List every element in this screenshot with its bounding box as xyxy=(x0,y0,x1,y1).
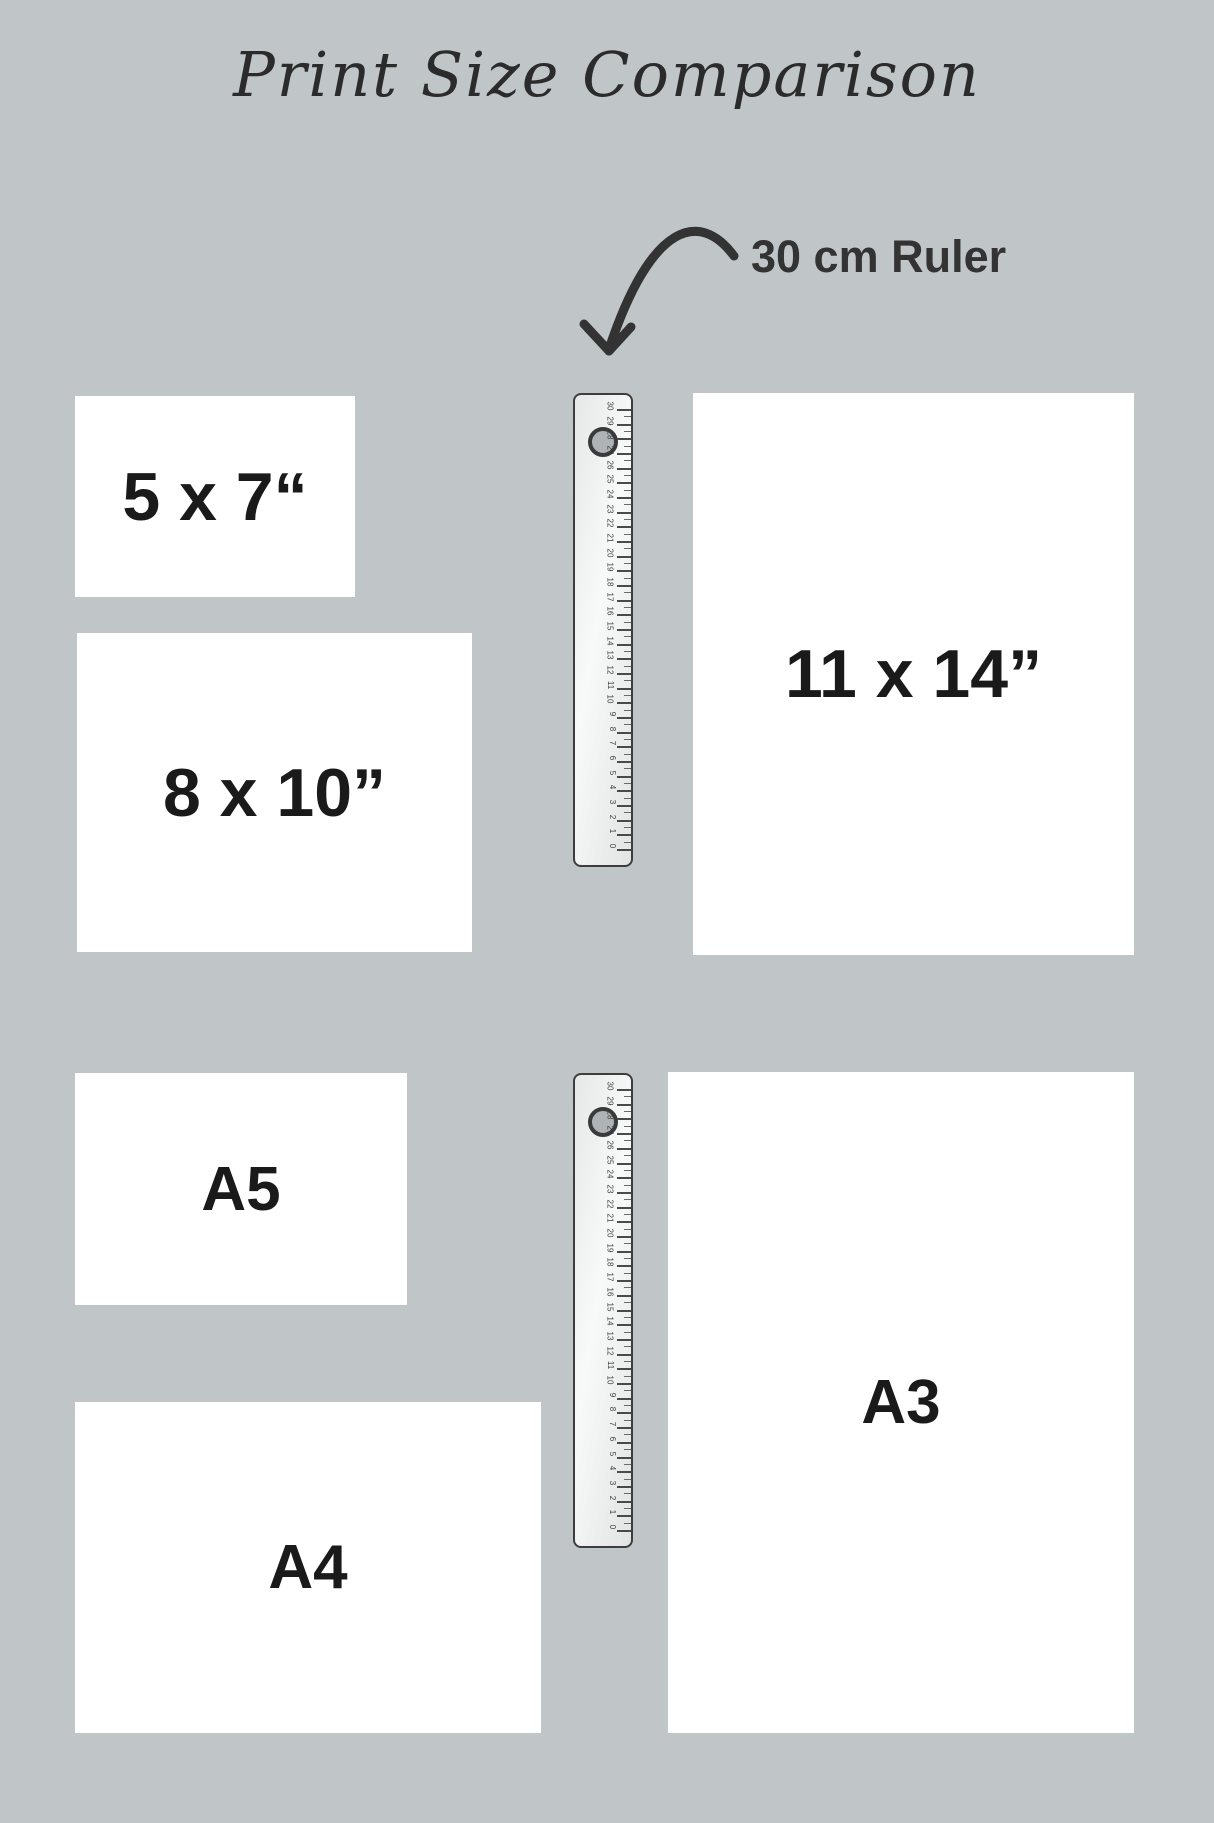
ruler-annotation-label: 30 cm Ruler xyxy=(751,231,1006,283)
ruler-number: 12 xyxy=(606,1346,614,1355)
paper-5x7: 5 x 7“ xyxy=(75,396,355,597)
ruler-tick xyxy=(617,761,631,763)
ruler-tick xyxy=(617,1515,631,1517)
ruler-tick-minor xyxy=(624,1258,631,1259)
ruler-number: 27 xyxy=(606,446,614,455)
ruler-tick xyxy=(617,834,631,836)
ruler-tick xyxy=(617,1118,631,1120)
ruler-tick-minor xyxy=(624,636,631,637)
ruler-number: 6 xyxy=(608,756,616,760)
ruler-tick-minor xyxy=(624,1287,631,1288)
paper-5x7-label: 5 x 7“ xyxy=(122,458,307,536)
ruler-tick-minor xyxy=(624,460,631,461)
ruler-tick xyxy=(617,438,631,440)
ruler-tick-minor xyxy=(624,1170,631,1171)
ruler-number: 4 xyxy=(608,785,616,789)
ruler-number: 28 xyxy=(606,431,614,440)
ruler-tick xyxy=(617,746,631,748)
ruler-bottom: 0123456789101112131415161718192021222324… xyxy=(573,1073,633,1548)
ruler-tick-minor xyxy=(624,798,631,799)
ruler-tick-minor xyxy=(624,1155,631,1156)
ruler-number: 1 xyxy=(608,1510,616,1514)
ruler-number: 30 xyxy=(606,402,614,411)
ruler-tick xyxy=(617,1133,631,1135)
ruler-tick xyxy=(617,453,631,455)
ruler-number: 7 xyxy=(608,741,616,745)
ruler-number: 10 xyxy=(606,695,614,704)
paper-8x10: 8 x 10” xyxy=(77,633,472,952)
ruler-tick xyxy=(617,1236,631,1238)
ruler-tick xyxy=(617,1221,631,1223)
ruler-tick-minor xyxy=(624,1376,631,1377)
ruler-tick xyxy=(617,468,631,470)
ruler-tick-minor xyxy=(624,1332,631,1333)
paper-a3: A3 xyxy=(668,1072,1134,1733)
ruler-number: 1 xyxy=(608,829,616,833)
paper-11x14: 11 x 14” xyxy=(693,393,1134,955)
ruler-tick-minor xyxy=(624,1140,631,1141)
ruler-tick-minor xyxy=(624,1479,631,1480)
ruler-tick xyxy=(617,644,631,646)
ruler-tick xyxy=(617,1368,631,1370)
ruler-tick-minor xyxy=(624,1273,631,1274)
ruler-tick-minor xyxy=(624,592,631,593)
ruler-tick xyxy=(617,820,631,822)
ruler-number: 5 xyxy=(608,770,616,774)
ruler-number: 8 xyxy=(608,1407,616,1411)
ruler-number: 14 xyxy=(606,636,614,645)
ruler-number: 4 xyxy=(608,1466,616,1470)
ruler-tick xyxy=(617,1163,631,1165)
ruler-tick-minor xyxy=(624,1214,631,1215)
ruler-tick-minor xyxy=(624,490,631,491)
ruler-tick-minor xyxy=(624,783,631,784)
ruler-tick xyxy=(617,790,631,792)
ruler-top: 0123456789101112131415161718192021222324… xyxy=(573,393,633,867)
ruler-tick-minor xyxy=(624,1111,631,1112)
paper-a5: A5 xyxy=(75,1073,407,1305)
ruler-tick xyxy=(617,1324,631,1326)
ruler-number: 16 xyxy=(606,1287,614,1296)
ruler-number: 17 xyxy=(606,592,614,601)
ruler-number: 0 xyxy=(608,1525,616,1529)
ruler-tick-minor xyxy=(624,1449,631,1450)
ruler-tick xyxy=(617,1265,631,1267)
ruler-tick-minor xyxy=(624,578,631,579)
ruler-tick-minor xyxy=(624,622,631,623)
ruler-number: 7 xyxy=(608,1422,616,1426)
ruler-tick xyxy=(617,570,631,572)
ruler-number: 15 xyxy=(606,622,614,631)
print-size-comparison-poster: Print Size Comparison 30 cm Ruler 5 x 7“… xyxy=(0,0,1214,1823)
ruler-tick xyxy=(617,776,631,778)
ruler-number: 11 xyxy=(606,681,614,689)
ruler-number: 29 xyxy=(606,1096,614,1105)
paper-a5-label: A5 xyxy=(201,1154,280,1225)
ruler-tick-minor xyxy=(624,1229,631,1230)
ruler-tick-minor xyxy=(624,812,631,813)
ruler-tick-minor xyxy=(624,519,631,520)
ruler-number: 21 xyxy=(606,534,614,543)
ruler-number: 21 xyxy=(606,1214,614,1223)
ruler-tick xyxy=(617,1295,631,1297)
ruler-tick-minor xyxy=(624,1434,631,1435)
ruler-number: 10 xyxy=(606,1376,614,1385)
page-title: Print Size Comparison xyxy=(0,38,1214,111)
ruler-number: 19 xyxy=(606,1243,614,1252)
ruler-number: 17 xyxy=(606,1273,614,1282)
paper-8x10-label: 8 x 10” xyxy=(163,754,386,832)
ruler-tick xyxy=(617,585,631,587)
ruler-tick-minor xyxy=(624,754,631,755)
ruler-tick-minor xyxy=(624,1420,631,1421)
ruler-tick xyxy=(617,805,631,807)
ruler-tick xyxy=(617,629,631,631)
ruler-tick-minor xyxy=(624,768,631,769)
ruler-number: 5 xyxy=(608,1451,616,1455)
ruler-tick xyxy=(617,1192,631,1194)
ruler-number: 2 xyxy=(608,1495,616,1499)
ruler-tick xyxy=(617,600,631,602)
ruler-number: 3 xyxy=(608,1481,616,1485)
ruler-number: 16 xyxy=(606,607,614,616)
ruler-tick-minor xyxy=(624,446,631,447)
ruler-number: 28 xyxy=(606,1111,614,1120)
ruler-tick xyxy=(617,1442,631,1444)
ruler-number: 19 xyxy=(606,563,614,572)
ruler-number: 30 xyxy=(606,1082,614,1091)
ruler-number: 22 xyxy=(606,1199,614,1208)
ruler-tick-minor xyxy=(624,1508,631,1509)
ruler-number: 24 xyxy=(606,490,614,499)
ruler-tick-minor xyxy=(624,1096,631,1097)
ruler-tick xyxy=(617,1471,631,1473)
ruler-tick-minor xyxy=(624,680,631,681)
ruler-tick-minor xyxy=(624,1243,631,1244)
ruler-tick-minor xyxy=(624,1317,631,1318)
paper-a4: A4 xyxy=(75,1402,541,1733)
ruler-number: 24 xyxy=(606,1170,614,1179)
ruler-tick-minor xyxy=(624,842,631,843)
ruler-tick xyxy=(617,688,631,690)
ruler-tick-minor xyxy=(624,710,631,711)
ruler-tick-minor xyxy=(624,1302,631,1303)
ruler-tick xyxy=(617,1530,631,1532)
ruler-tick-minor xyxy=(624,504,631,505)
ruler-number: 20 xyxy=(606,1229,614,1238)
ruler-number: 20 xyxy=(606,548,614,557)
ruler-tick xyxy=(617,1457,631,1459)
ruler-tick xyxy=(617,702,631,704)
ruler-tick xyxy=(617,526,631,528)
ruler-tick-minor xyxy=(624,534,631,535)
ruler-number: 0 xyxy=(608,844,616,848)
ruler-number: 9 xyxy=(608,712,616,716)
ruler-number: 23 xyxy=(606,1184,614,1193)
ruler-number: 6 xyxy=(608,1437,616,1441)
ruler-tick-minor xyxy=(624,475,631,476)
ruler-tick-minor xyxy=(624,563,631,564)
ruler-tick-minor xyxy=(624,1185,631,1186)
ruler-tick xyxy=(617,1339,631,1341)
ruler-number: 15 xyxy=(606,1302,614,1311)
ruler-tick-minor xyxy=(624,827,631,828)
ruler-number: 26 xyxy=(606,460,614,469)
ruler-tick xyxy=(617,1177,631,1179)
ruler-number: 27 xyxy=(606,1126,614,1135)
ruler-number: 2 xyxy=(608,814,616,818)
ruler-tick xyxy=(617,1251,631,1253)
ruler-tick xyxy=(617,614,631,616)
ruler-tick-minor xyxy=(624,1405,631,1406)
ruler-number: 11 xyxy=(606,1361,614,1369)
ruler-tick xyxy=(617,1486,631,1488)
paper-a4-label: A4 xyxy=(268,1532,347,1603)
ruler-tick xyxy=(617,1412,631,1414)
ruler-number: 8 xyxy=(608,726,616,730)
ruler-number: 26 xyxy=(606,1140,614,1149)
ruler-tick-minor xyxy=(624,739,631,740)
ruler-tick xyxy=(617,512,631,514)
ruler-tick-minor xyxy=(624,651,631,652)
ruler-number: 25 xyxy=(606,1155,614,1164)
ruler-tick xyxy=(617,717,631,719)
ruler-tick xyxy=(617,1427,631,1429)
ruler-tick xyxy=(617,1104,631,1106)
ruler-tick xyxy=(617,849,631,851)
ruler-number: 9 xyxy=(608,1392,616,1396)
ruler-tick xyxy=(617,1280,631,1282)
ruler-tick xyxy=(617,1354,631,1356)
ruler-tick-minor xyxy=(624,1464,631,1465)
ruler-tick-minor xyxy=(624,416,631,417)
ruler-tick xyxy=(617,1398,631,1400)
ruler-tick xyxy=(617,482,631,484)
ruler-tick xyxy=(617,541,631,543)
ruler-number: 25 xyxy=(606,475,614,484)
ruler-tick-minor xyxy=(624,1199,631,1200)
ruler-tick-minor xyxy=(624,1390,631,1391)
ruler-tick xyxy=(617,1383,631,1385)
ruler-tick-minor xyxy=(624,695,631,696)
ruler-tick xyxy=(617,497,631,499)
ruler-tick-minor xyxy=(624,1493,631,1494)
ruler-number: 18 xyxy=(606,1258,614,1267)
ruler-tick xyxy=(617,424,631,426)
ruler-tick-minor xyxy=(624,548,631,549)
ruler-number: 18 xyxy=(606,578,614,587)
ruler-tick-minor xyxy=(624,1126,631,1127)
ruler-tick-minor xyxy=(624,431,631,432)
ruler-number: 22 xyxy=(606,519,614,528)
ruler-tick xyxy=(617,556,631,558)
paper-11x14-label: 11 x 14” xyxy=(785,635,1042,713)
ruler-number: 13 xyxy=(606,1331,614,1340)
ruler-tick xyxy=(617,658,631,660)
ruler-tick xyxy=(617,1501,631,1503)
ruler-tick xyxy=(617,1148,631,1150)
ruler-number: 23 xyxy=(606,504,614,513)
ruler-number: 29 xyxy=(606,416,614,425)
ruler-tick-minor xyxy=(624,1523,631,1524)
ruler-tick xyxy=(617,732,631,734)
ruler-number: 13 xyxy=(606,651,614,660)
paper-a3-label: A3 xyxy=(861,1367,940,1438)
ruler-number: 3 xyxy=(608,800,616,804)
ruler-number: 14 xyxy=(606,1317,614,1326)
ruler-tick-minor xyxy=(624,607,631,608)
ruler-tick xyxy=(617,1089,631,1091)
ruler-tick-minor xyxy=(624,666,631,667)
ruler-tick-minor xyxy=(624,724,631,725)
ruler-tick xyxy=(617,673,631,675)
ruler-number: 12 xyxy=(606,666,614,675)
ruler-tick xyxy=(617,1207,631,1209)
ruler-tick-minor xyxy=(624,1361,631,1362)
ruler-tick xyxy=(617,409,631,411)
ruler-tick-minor xyxy=(624,1346,631,1347)
ruler-tick xyxy=(617,1310,631,1312)
